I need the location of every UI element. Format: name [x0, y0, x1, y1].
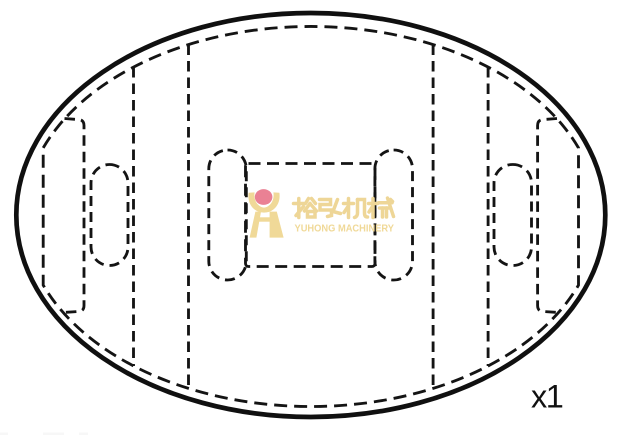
svg-text:x1: x1	[531, 379, 563, 415]
svg-text:YUHONG MACHINERY: YUHONG MACHINERY	[295, 223, 395, 235]
